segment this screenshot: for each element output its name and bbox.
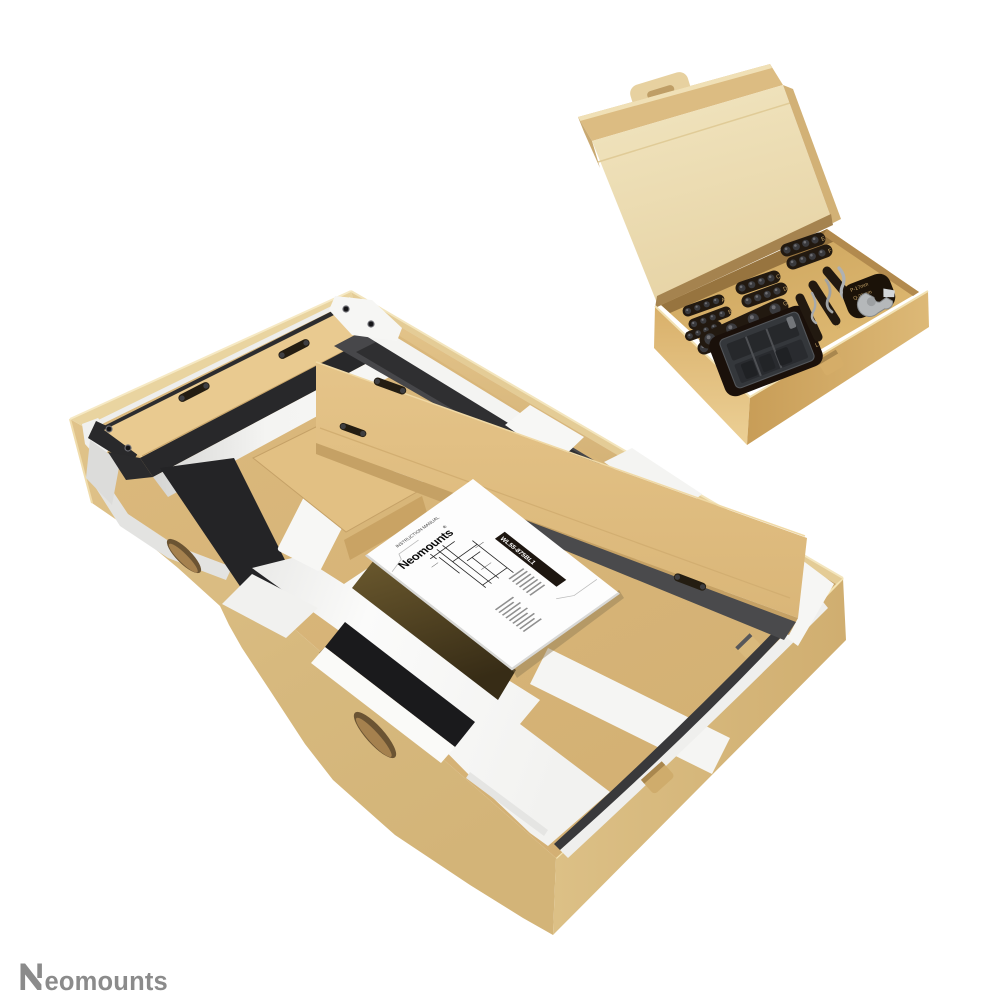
svg-text:eomounts: eomounts bbox=[45, 968, 168, 996]
